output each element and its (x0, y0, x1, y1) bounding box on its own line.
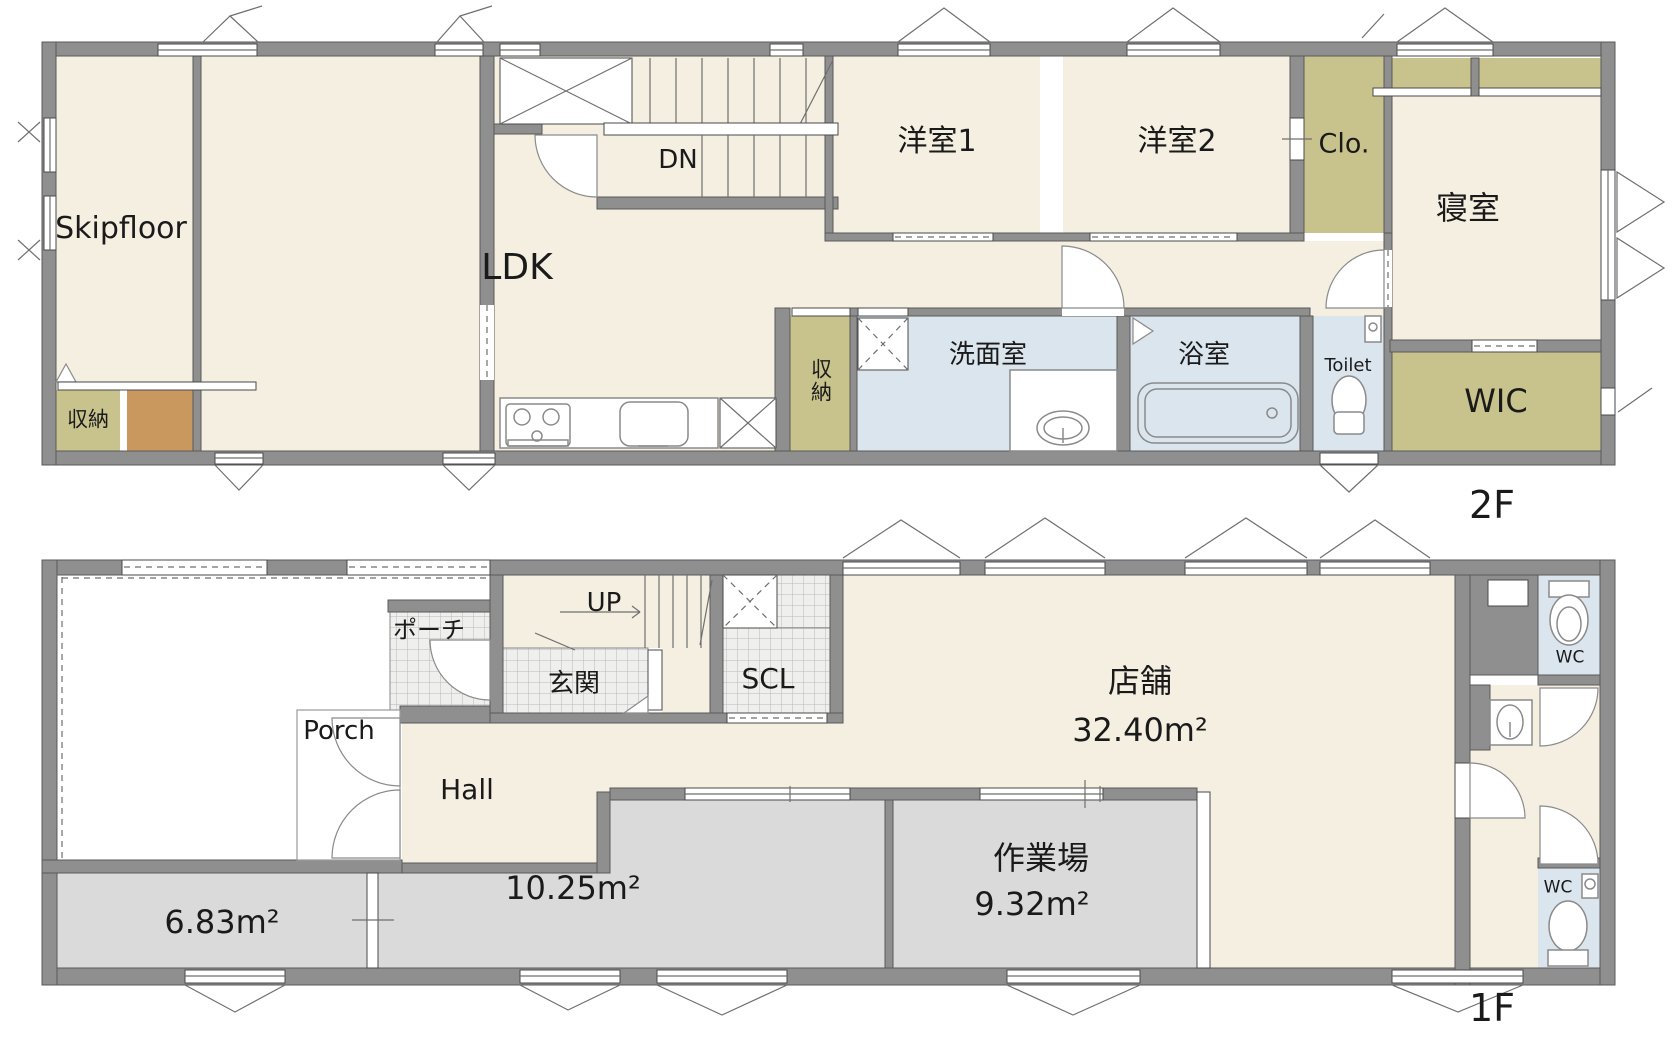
label-hall: Hall (440, 776, 494, 804)
label-shop-area: 32.40m² (1072, 714, 1208, 746)
second-floor-plan (18, 6, 1664, 492)
floor-plan-drawing (0, 0, 1672, 1054)
kitchen-counter (500, 398, 776, 448)
label-stairs-dn: DN (658, 147, 697, 173)
label-storage-2f-hall: 収納 (810, 358, 831, 404)
label-floor-tag-2f: 2F (1469, 486, 1515, 524)
label-storage-2f-left: 収納 (67, 410, 109, 431)
label-western-room-2: 洋室2 (1137, 127, 1216, 157)
label-ldk: LDK (481, 250, 552, 286)
label-shop-name: 店舗 (1108, 665, 1172, 697)
label-wc-top: WC (1556, 650, 1585, 667)
label-porch-jp: ポーチ (393, 618, 465, 642)
label-bathroom: 浴室 (1178, 342, 1230, 368)
label-bedroom: 寝室 (1436, 192, 1500, 224)
label-area-683: 6.83m² (164, 906, 279, 938)
label-closet: Clo. (1319, 131, 1370, 158)
label-area-1025: 10.25m² (505, 872, 641, 904)
label-entrance: 玄関 (548, 671, 600, 697)
label-stairs-up: UP (587, 590, 622, 616)
label-scl: SCL (742, 665, 795, 693)
label-skipfloor: Skipfloor (55, 214, 187, 244)
label-washroom: 洗面室 (949, 342, 1027, 368)
label-wic: WIC (1464, 385, 1527, 417)
label-wc-bottom: WC (1544, 880, 1573, 897)
label-workshop-name: 作業場 (993, 842, 1089, 874)
label-porch-en: Porch (303, 718, 375, 744)
label-floor-tag-1f: 1F (1469, 989, 1515, 1027)
label-western-room-1: 洋室1 (897, 127, 976, 157)
label-workshop-area: 9.32m² (974, 888, 1089, 920)
floor-plan-page: Skipfloor 収納 LDK DN 洋室1 洋室2 Clo. 寝室 収納 洗… (0, 0, 1672, 1054)
scl-closet-box (723, 575, 777, 628)
label-toilet: Toilet (1324, 357, 1371, 375)
